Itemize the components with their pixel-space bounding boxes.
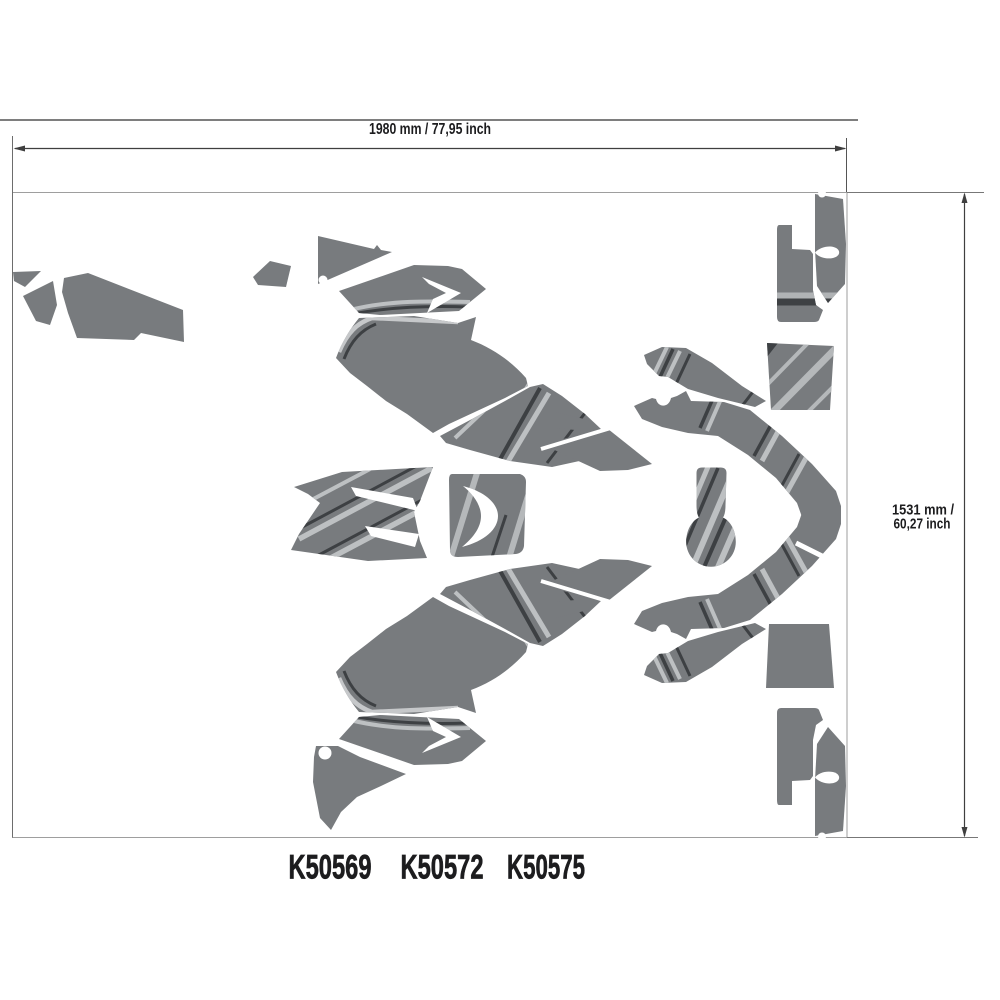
svg-text:K50572: K50572 [401, 849, 484, 887]
svg-text:K50575: K50575 [507, 849, 585, 887]
svg-text:1980 mm / 77,95 inch: 1980 mm / 77,95 inch [369, 121, 491, 138]
svg-text:60,27 inch: 60,27 inch [894, 516, 951, 533]
svg-text:K50569: K50569 [289, 849, 372, 887]
